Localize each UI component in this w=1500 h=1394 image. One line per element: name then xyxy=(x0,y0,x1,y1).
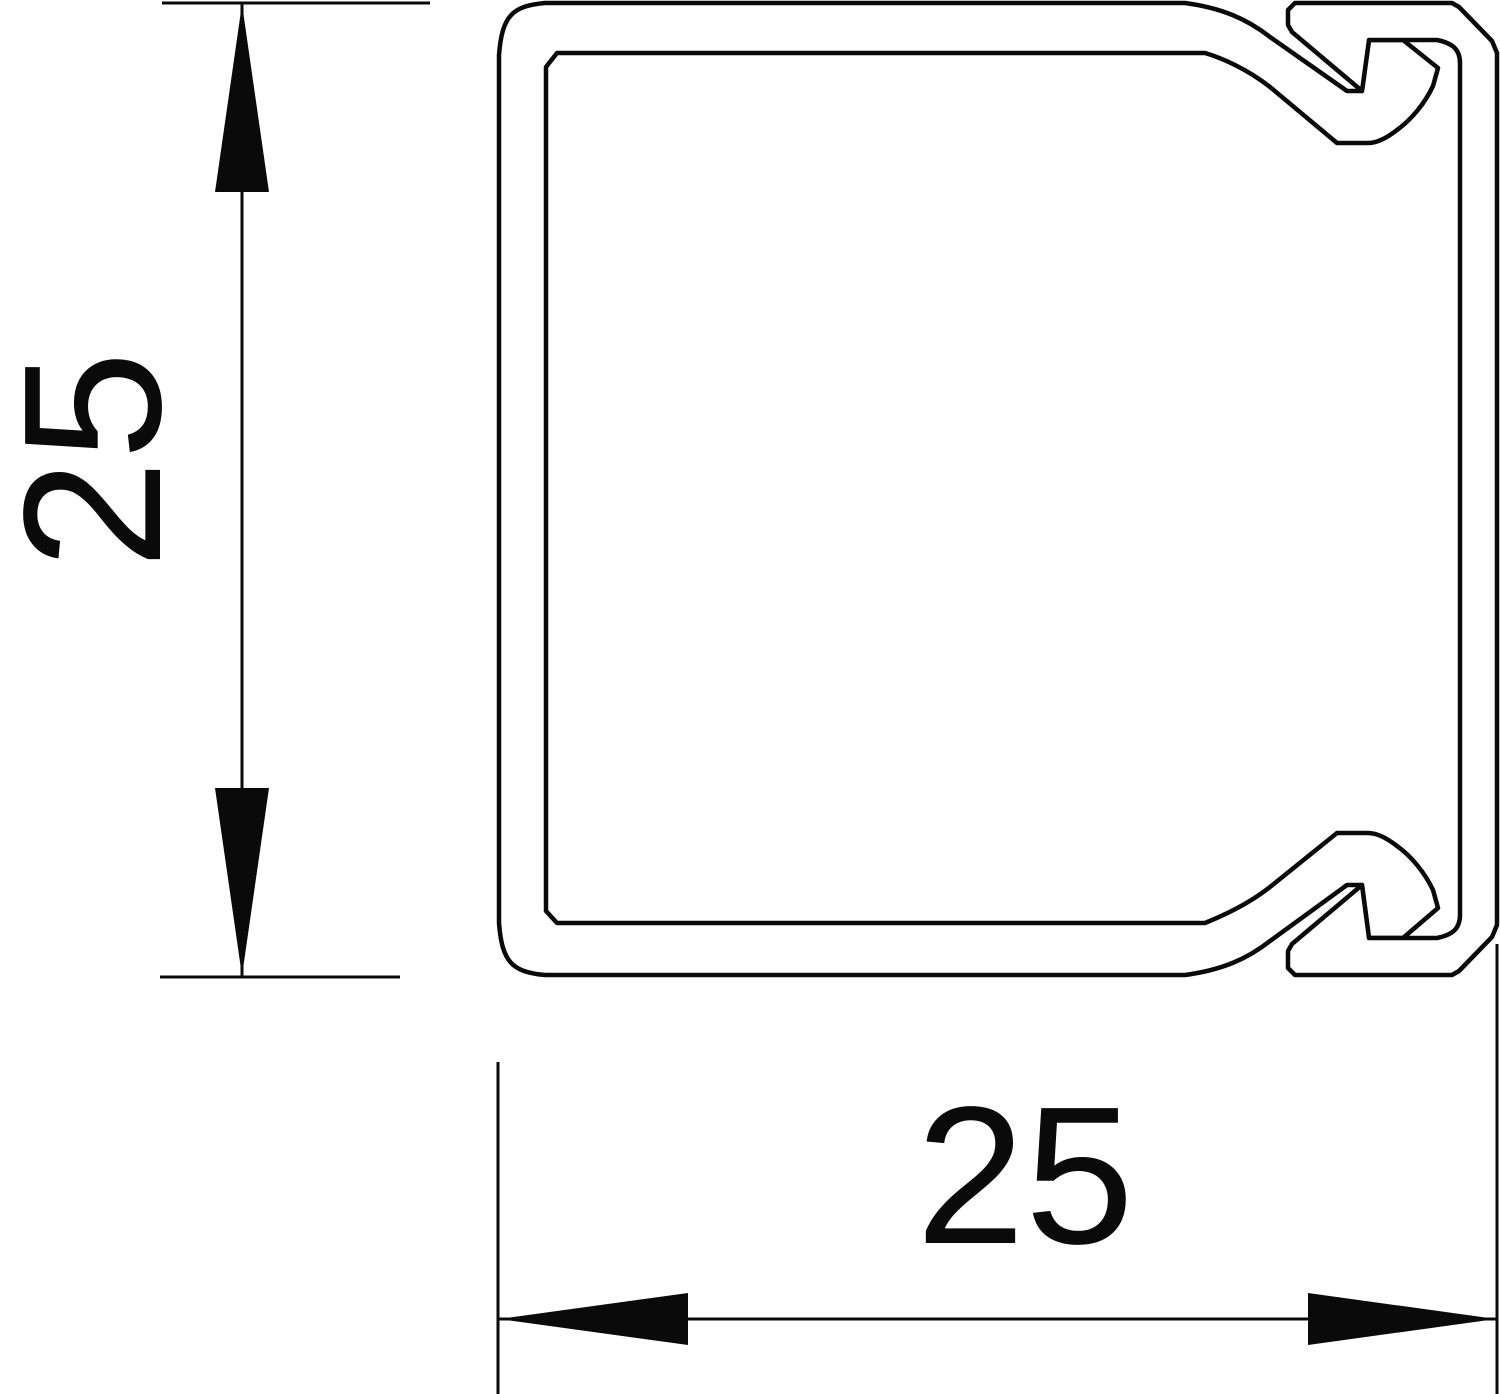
height-dimension: 25 xyxy=(0,3,430,977)
trunking-cross-section-svg: 25 25 xyxy=(0,0,1500,1394)
right-arrowhead-icon xyxy=(1308,1293,1496,1345)
dimension-drawing: 25 25 xyxy=(0,0,1500,1394)
trunking-base-profile xyxy=(499,3,1438,975)
width-dimension-label: 25 xyxy=(916,1066,1134,1285)
down-arrowhead-icon xyxy=(215,788,269,976)
width-dimension: 25 xyxy=(498,944,1497,1394)
up-arrowhead-icon xyxy=(215,4,269,192)
height-dimension-label: 25 xyxy=(0,351,202,569)
left-arrowhead-icon xyxy=(499,1293,688,1345)
trunking-cover-profile xyxy=(1288,3,1497,975)
